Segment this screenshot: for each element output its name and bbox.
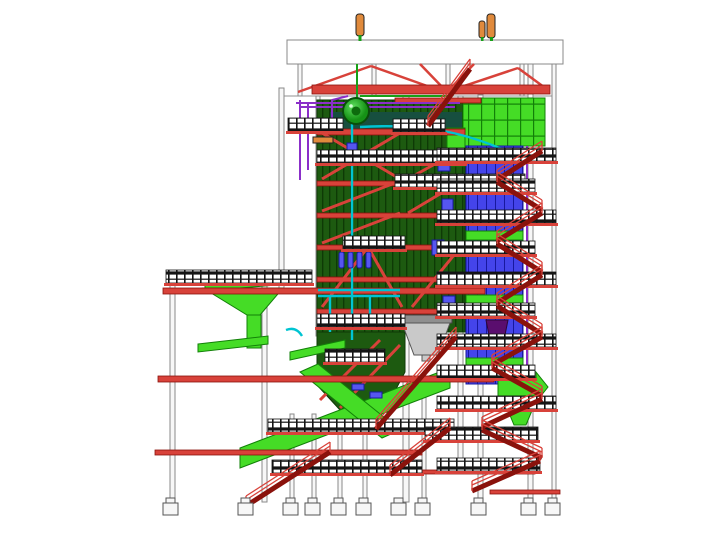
burner-nozzle <box>339 252 344 268</box>
silencer-stem <box>359 35 362 41</box>
railing-band <box>325 349 385 362</box>
safety-valve-silencer <box>356 14 364 36</box>
silencer-stem <box>481 37 484 41</box>
footing-cap <box>334 498 343 503</box>
footing-block <box>356 503 371 515</box>
burner-nozzle <box>348 252 353 268</box>
platform-edge-beam <box>315 327 407 330</box>
drawing-canvas <box>0 0 720 540</box>
platform-edge-beam <box>435 161 558 164</box>
silencer-stem <box>490 37 493 41</box>
footing-block <box>391 503 406 515</box>
conveyor-drive-box <box>352 384 364 390</box>
railing-band <box>393 119 445 132</box>
footing-block <box>545 503 560 515</box>
red-beam <box>312 85 550 94</box>
gallery-segment <box>198 336 268 352</box>
railing-band <box>437 365 535 378</box>
footing-block <box>521 503 536 515</box>
drum-highlight <box>349 104 353 108</box>
cyan-elbow <box>286 329 302 336</box>
railing-band <box>166 270 312 283</box>
footing-block <box>283 503 298 515</box>
steel-column <box>279 88 284 290</box>
burner-nozzle <box>366 252 371 268</box>
footing-cap <box>241 498 250 503</box>
footing-cap <box>548 498 557 503</box>
footing-cap <box>286 498 295 503</box>
steam-drum <box>343 98 369 124</box>
footing-cap <box>474 498 483 503</box>
conveyor-drive-box <box>370 392 382 398</box>
boiler-elevation-drawing <box>0 0 720 540</box>
platform-edge-beam <box>323 362 387 365</box>
footing-cap <box>359 498 368 503</box>
penthouse-box <box>287 40 563 64</box>
railing-band <box>343 236 405 249</box>
footing-cap <box>524 498 533 503</box>
platform-edge-beam <box>341 249 407 252</box>
railing-band <box>317 314 405 327</box>
platform-edge-beam <box>435 285 558 288</box>
column-footings <box>163 498 560 515</box>
red-beam <box>490 490 560 494</box>
red-beam <box>155 450 422 455</box>
footing-block <box>305 503 320 515</box>
safety-valve-silencer <box>487 14 495 38</box>
footing-block <box>163 503 178 515</box>
steel-column <box>170 271 175 502</box>
platform-edge-beam <box>391 132 447 135</box>
platform-edge-beam <box>164 283 314 286</box>
railing-band <box>288 118 343 131</box>
footing-block <box>238 503 253 515</box>
drum-manway <box>352 107 361 116</box>
footing-cap <box>418 498 427 503</box>
footing-cap <box>394 498 403 503</box>
footing-block <box>331 503 346 515</box>
footing-cap <box>308 498 317 503</box>
platform-edge-beam <box>286 131 345 134</box>
footing-block <box>471 503 486 515</box>
orange-duct-stub <box>313 137 333 143</box>
footing-cap <box>166 498 175 503</box>
platform-edge-beam <box>435 347 558 350</box>
safety-valve-silencer <box>479 21 485 38</box>
footing-block <box>415 503 430 515</box>
penthouse-roof-assembly <box>287 14 563 64</box>
burner-nozzle <box>357 252 362 268</box>
platform-edge-beam <box>435 223 558 226</box>
